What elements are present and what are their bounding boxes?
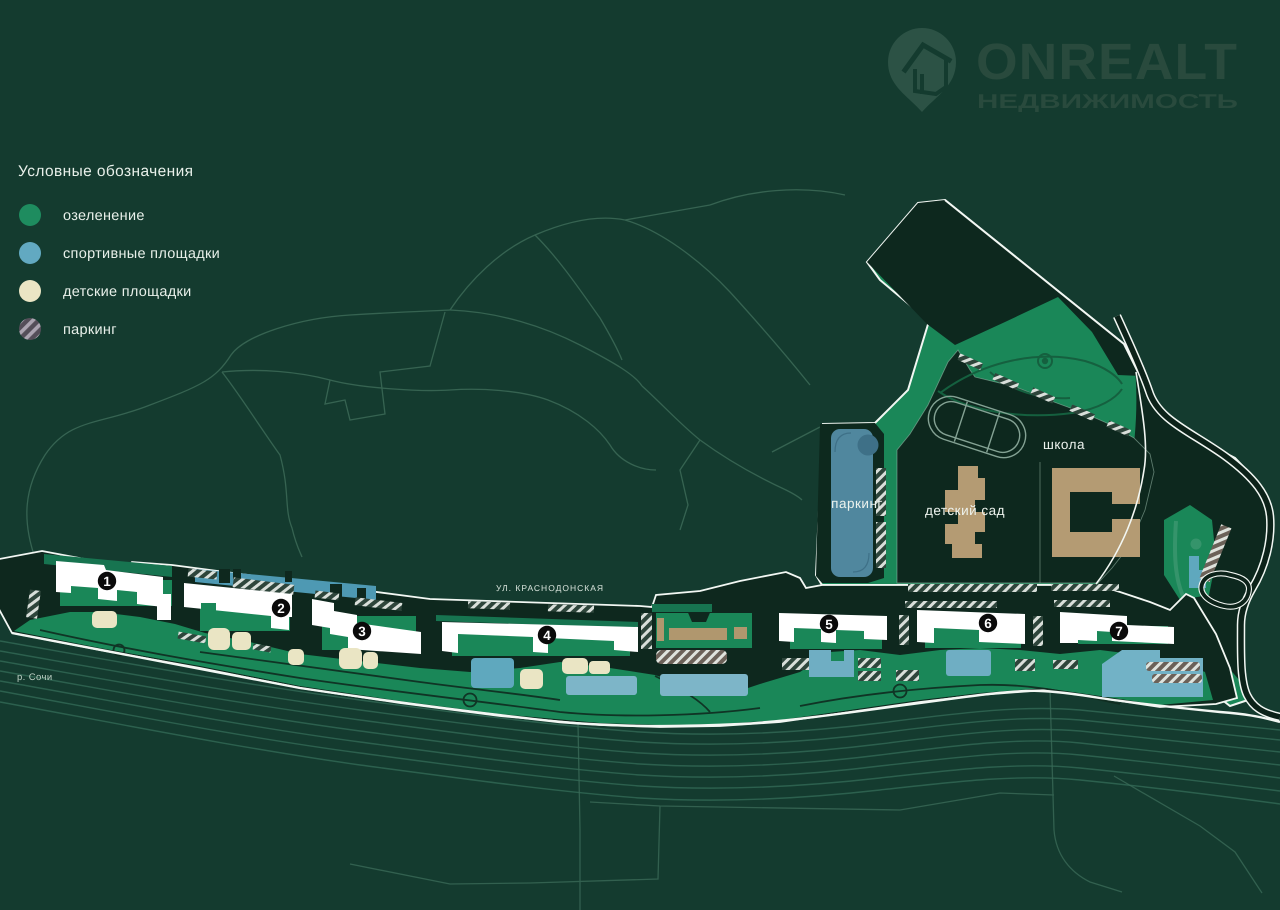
svg-text:1: 1: [103, 574, 111, 589]
svg-text:УЛ. КРАСНОДОНСКАЯ: УЛ. КРАСНОДОНСКАЯ: [496, 583, 604, 593]
svg-text:7: 7: [1115, 624, 1123, 639]
svg-text:6: 6: [984, 616, 992, 631]
svg-text:паркинг: паркинг: [831, 496, 883, 511]
svg-text:паркинг: паркинг: [63, 322, 117, 338]
svg-text:р. Сочи: р. Сочи: [17, 672, 53, 683]
svg-text:3: 3: [358, 624, 366, 639]
svg-text:4: 4: [543, 628, 551, 643]
svg-text:детские площадки: детские площадки: [63, 284, 192, 300]
svg-text:НЕДВИЖИМОСТЬ: НЕДВИЖИМОСТЬ: [977, 91, 1238, 113]
svg-text:2: 2: [277, 601, 285, 616]
svg-text:спортивные площадки: спортивные площадки: [63, 246, 220, 262]
svg-text:ONREALT: ONREALT: [976, 33, 1238, 90]
svg-text:озеленение: озеленение: [63, 208, 145, 224]
svg-text:Условные обозначения: Условные обозначения: [18, 163, 193, 180]
svg-text:школа: школа: [1043, 437, 1085, 452]
svg-text:5: 5: [825, 617, 833, 632]
svg-text:детский сад: детский сад: [925, 503, 1005, 518]
